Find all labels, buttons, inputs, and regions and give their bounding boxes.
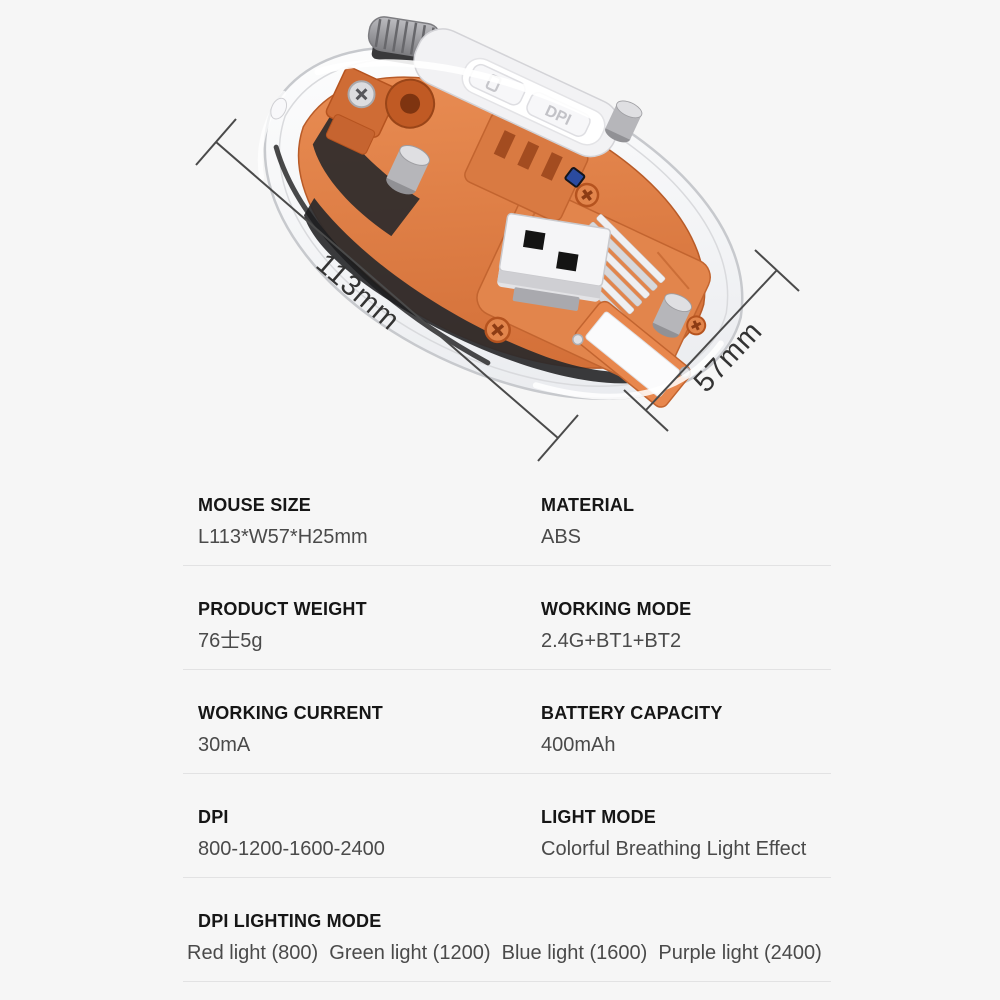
spec-row: WORKING CURRENT 30mA BATTERY CAPACITY 40…: [183, 670, 831, 774]
spec-label: MOUSE SIZE: [198, 496, 541, 514]
spec-row: MOUSE SIZE L113*W57*H25mm MATERIAL ABS: [183, 462, 831, 566]
spec-cell: MOUSE SIZE L113*W57*H25mm: [198, 496, 541, 565]
spec-table: MOUSE SIZE L113*W57*H25mm MATERIAL ABS P…: [183, 462, 831, 982]
spec-row: PRODUCT WEIGHT 76士5g WORKING MODE 2.4G+B…: [183, 566, 831, 670]
spec-row: DPI LIGHTING MODE Red light (800) Green …: [183, 878, 831, 982]
spec-label: DPI LIGHTING MODE: [198, 912, 831, 930]
spec-value: Colorful Breathing Light Effect: [541, 839, 831, 860]
spec-label: DPI: [198, 808, 541, 826]
spec-label: MATERIAL: [541, 496, 831, 514]
usb-contact: [556, 251, 578, 271]
spec-label: PRODUCT WEIGHT: [198, 600, 541, 618]
spec-value: 76士5g: [198, 631, 541, 652]
spec-value: 2.4G+BT1+BT2: [541, 631, 831, 652]
spec-row: DPI 800-1200-1600-2400 LIGHT MODE Colorf…: [183, 774, 831, 878]
spec-label: WORKING CURRENT: [198, 704, 541, 722]
spec-label: LIGHT MODE: [541, 808, 831, 826]
product-infographic: DPI: [0, 0, 1000, 1000]
spec-value: 800-1200-1600-2400: [198, 839, 541, 860]
spec-cell: LIGHT MODE Colorful Breathing Light Effe…: [541, 808, 831, 877]
spec-label: WORKING MODE: [541, 600, 831, 618]
spec-label: BATTERY CAPACITY: [541, 704, 831, 722]
spec-value: ABS: [541, 527, 831, 548]
spec-cell: WORKING CURRENT 30mA: [198, 704, 541, 773]
mouse-diagram: DPI: [0, 0, 1000, 462]
spec-cell: PRODUCT WEIGHT 76士5g: [198, 600, 541, 669]
spec-cell: WORKING MODE 2.4G+BT1+BT2: [541, 600, 831, 669]
usb-contact: [523, 230, 545, 250]
spec-cell: DPI 800-1200-1600-2400: [198, 808, 541, 877]
spec-value: 30mA: [198, 735, 541, 756]
spec-value: L113*W57*H25mm: [198, 527, 541, 548]
spec-cell: DPI LIGHTING MODE Red light (800) Green …: [198, 912, 831, 964]
spec-value: Red light (800) Green light (1200) Blue …: [187, 943, 831, 964]
spec-cell: MATERIAL ABS: [541, 496, 831, 565]
spec-value: 400mAh: [541, 735, 831, 756]
spec-cell: BATTERY CAPACITY 400mAh: [541, 704, 831, 773]
